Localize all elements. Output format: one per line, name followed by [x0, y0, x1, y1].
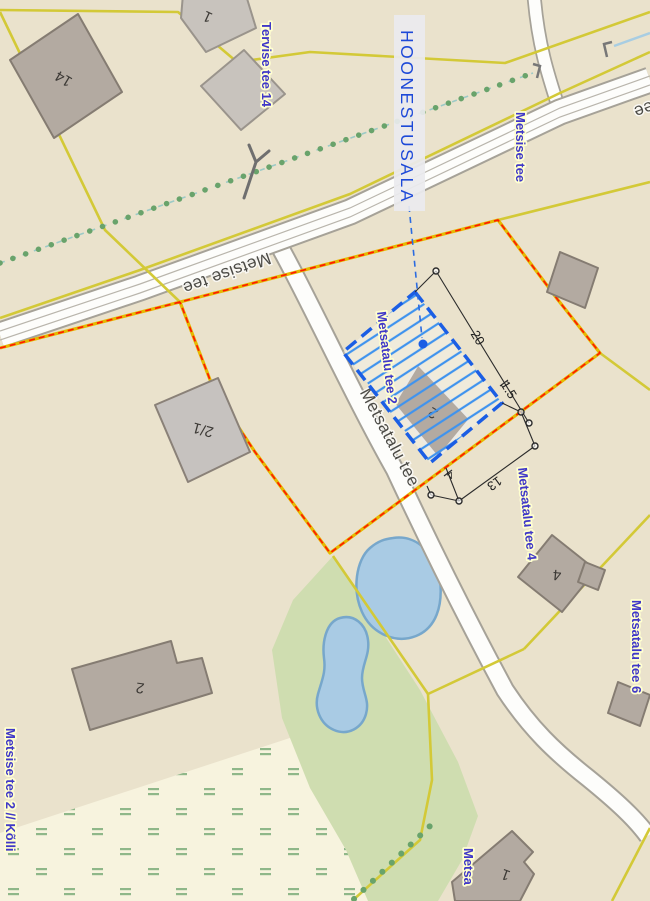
address-label-metsise-tee: Metsise tee — [513, 112, 528, 182]
pond-lower — [317, 617, 369, 732]
callout-anchor-dot — [419, 340, 428, 349]
hoonestusala-label: HOONESTUSALA — [397, 30, 417, 204]
address-label-metsatalu-tee-6: Metsatalu tee 6 — [629, 600, 644, 693]
address-label-metsa-partial: Metsa — [461, 848, 476, 886]
planning-map-canvas[interactable]: Metsise tee Metsise tee Metsatalu tee 14… — [0, 0, 650, 901]
address-label-tervise-tee-14: Tervise tee 14 — [259, 22, 274, 108]
building-label-4: 4 — [552, 566, 562, 584]
address-label-metsise-tee-2-kolli: Metsise tee 2 // Kõlli — [3, 728, 18, 852]
map-viewport[interactable]: Metsise tee Metsise tee Metsatalu tee 14… — [0, 0, 650, 901]
